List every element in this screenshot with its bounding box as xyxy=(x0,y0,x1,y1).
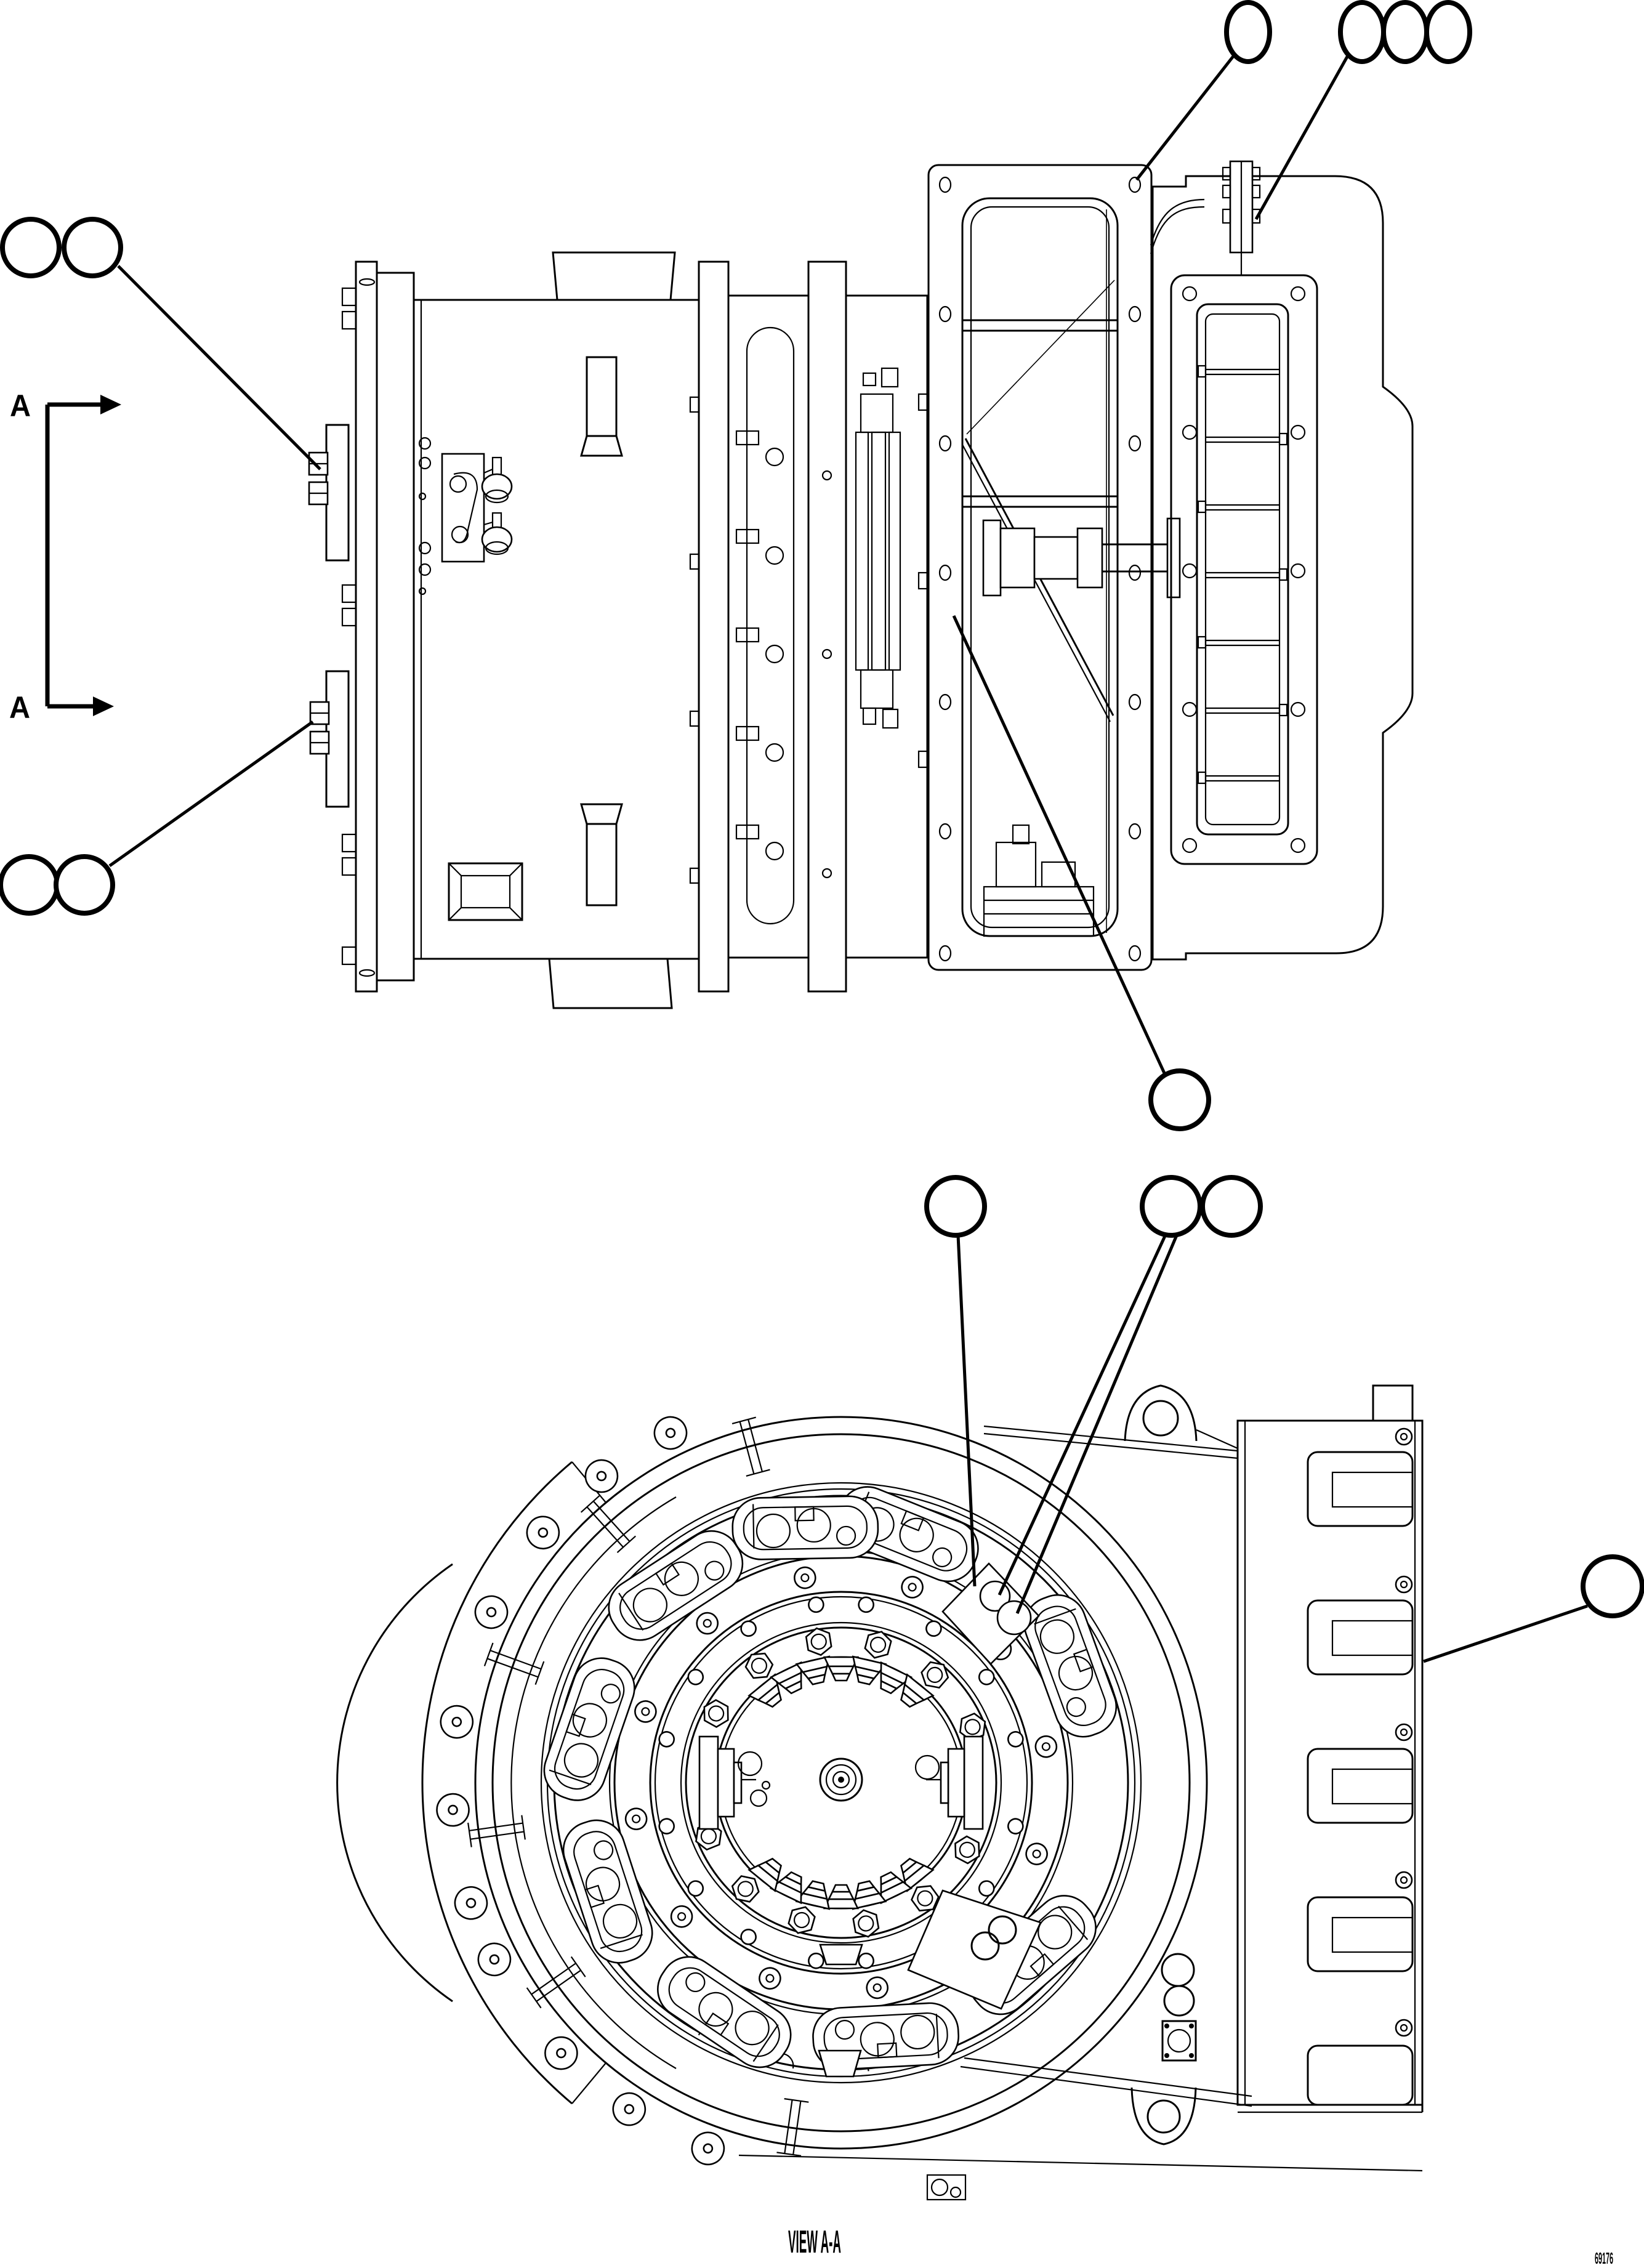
callout-balloon xyxy=(2,219,59,276)
handle-bracket-lower xyxy=(581,804,622,905)
left-flange-lower xyxy=(310,671,349,807)
housing-edge-bolts xyxy=(1396,1429,1412,2036)
drawing-sheet: A A VIEW A-A 69176 xyxy=(0,0,1644,2268)
leader-line xyxy=(1017,1235,1177,1613)
rear-housing xyxy=(1151,161,1412,959)
engineering-drawing: A A VIEW A-A 69176 xyxy=(0,0,1644,2268)
side-mechanism-right xyxy=(926,1737,983,1829)
leader-line xyxy=(1137,55,1234,180)
callout-balloon xyxy=(1427,2,1470,62)
housing-bottom-bump xyxy=(549,959,672,1008)
leader-line xyxy=(1424,1606,1587,1661)
section-label-top: A xyxy=(10,389,31,423)
recessed-panel xyxy=(449,863,522,920)
callout-balloon xyxy=(1142,1177,1200,1235)
left-plate-outer xyxy=(356,262,377,991)
main-housing xyxy=(414,300,699,959)
callout-balloon xyxy=(1340,2,1384,62)
tube-fitting-assembly xyxy=(419,438,512,594)
valve-panel-slot xyxy=(747,328,794,924)
callout-balloon xyxy=(56,857,113,913)
leader-line xyxy=(118,266,320,469)
left-plate-bolts xyxy=(342,288,356,964)
leader-line xyxy=(1256,57,1347,219)
leader-line xyxy=(110,722,313,866)
top-bolt-strip xyxy=(1223,161,1260,275)
view-label: VIEW A-A xyxy=(788,2224,841,2260)
section-arrow-bottom xyxy=(93,696,114,716)
callout-balloon xyxy=(1384,2,1427,62)
pin-hole-2 xyxy=(997,1601,1031,1634)
ribbed-window xyxy=(1197,304,1288,834)
housing-slots xyxy=(1308,1452,1412,2105)
housing-top-notch xyxy=(1373,1386,1412,1421)
cylinder-bay xyxy=(846,296,927,958)
valve-panel xyxy=(728,296,808,958)
callout-balloon xyxy=(1203,1177,1260,1235)
small-valve-component xyxy=(1162,1954,1196,2060)
center-hub xyxy=(820,1759,862,1801)
bell-dome xyxy=(337,1564,453,2001)
cylinders xyxy=(856,368,900,728)
side-mechanism-left xyxy=(699,1737,756,1829)
pipe xyxy=(1151,207,1204,254)
leader-line xyxy=(999,1235,1166,1595)
section-view-aa xyxy=(337,1386,1422,2200)
handle-bracket-upper xyxy=(581,357,622,456)
section-marker: A A xyxy=(9,389,121,725)
callout-balloon xyxy=(927,1177,985,1235)
window-ribs xyxy=(1198,366,1287,783)
callout-balloon xyxy=(64,219,121,276)
leader-line xyxy=(954,616,1166,1076)
mid-column-2 xyxy=(808,262,846,991)
mid-column-1 xyxy=(699,262,728,991)
callout-balloon xyxy=(1227,2,1270,62)
section-arrow-top xyxy=(100,395,121,414)
shaft-assembly xyxy=(983,519,1180,597)
gear-housing xyxy=(1238,1386,1422,2112)
callout-balloon xyxy=(1151,1071,1209,1129)
flywheel-rings xyxy=(422,1411,1207,2169)
mid-column-1-nubs xyxy=(690,397,699,883)
left-flange-upper xyxy=(309,425,349,560)
side-view xyxy=(309,161,1412,1008)
callout-balloons xyxy=(1,2,1642,1616)
drawing-number: 69176 xyxy=(1595,2249,1613,2267)
callout-balloon xyxy=(1,857,57,913)
left-plate-inner xyxy=(377,273,414,980)
section-label-bottom: A xyxy=(9,690,30,725)
valve-mechanisms xyxy=(736,431,783,860)
housing-top-bump xyxy=(553,252,675,300)
callout-balloon xyxy=(1583,1557,1642,1616)
